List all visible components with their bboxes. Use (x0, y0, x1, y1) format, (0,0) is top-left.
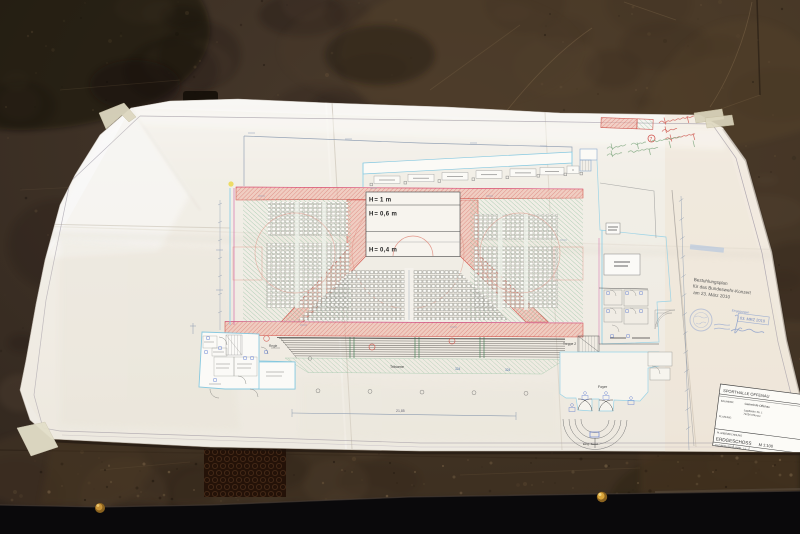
svg-text:Tribuene: Tribuene (390, 365, 404, 369)
svg-text:21,85: 21,85 (396, 409, 405, 413)
svg-text:324: 324 (505, 368, 511, 372)
svg-text:7: 7 (650, 137, 653, 143)
svg-text:Foyer: Foyer (598, 385, 608, 389)
svg-text:H=0,6 m: H=0,6 m (369, 212, 397, 218)
svg-text:324: 324 (455, 367, 461, 371)
svg-text:H=1 m: H=1 m (369, 198, 391, 204)
svg-text:Regie: Regie (269, 344, 278, 348)
svg-text:Treppe 2: Treppe 2 (563, 342, 576, 346)
svg-text:H=0,4 m: H=0,4 m (369, 248, 397, 254)
svg-text:Eing. Sued: Eing. Sued (583, 442, 598, 446)
